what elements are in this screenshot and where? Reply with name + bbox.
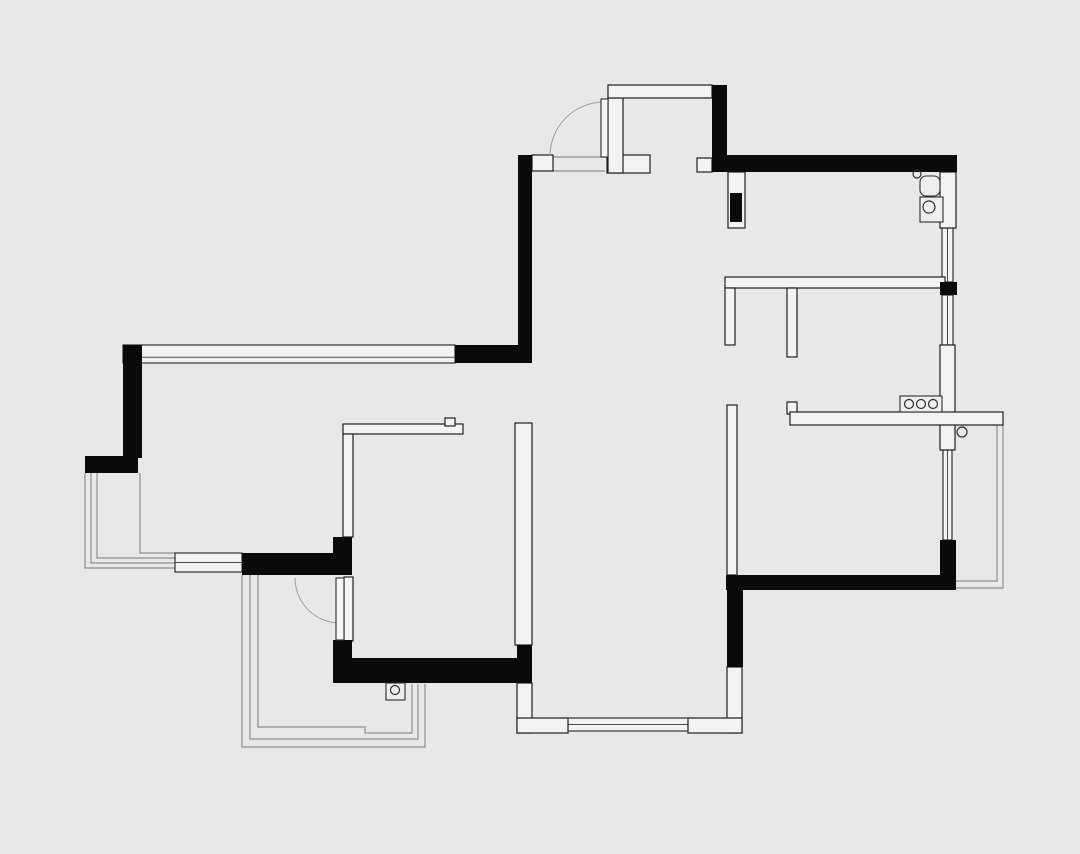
entry-niche-north-wall [608, 85, 712, 98]
bedroom2-balcony-door-leaf [336, 578, 344, 640]
north-exterior-wall [712, 155, 957, 172]
balcony-door-jamb [344, 577, 353, 641]
northwest-wall-corner [455, 345, 532, 363]
bedroom2-west-wall-upper [333, 537, 352, 575]
southeast-wall [726, 575, 955, 590]
bedroom2-west-wall-lower [333, 640, 352, 683]
entry-niche-west-wall [608, 98, 623, 173]
entry-east-stub [697, 158, 712, 172]
closet-wall-leg-a [725, 288, 735, 345]
hall-wall-vertical [727, 405, 737, 575]
east-balcony-rail-inner [955, 425, 997, 581]
entry-door-leaf [601, 99, 608, 157]
west-balcony-ledge [85, 456, 138, 473]
bedroom2-north-notch [445, 418, 455, 426]
east-balcony-rail-outer [955, 425, 1003, 588]
living-southwest-wall-h [517, 718, 568, 733]
north-long-window [123, 345, 455, 363]
floor-plan-canvas [0, 0, 1080, 854]
west-balcony-rail-mid [91, 473, 175, 563]
kitchen-wall-horizontal [790, 412, 1003, 425]
east-wall-block [940, 282, 957, 295]
entry-pier-fill [730, 193, 742, 222]
floor-plan [0, 0, 1080, 854]
bedroom2-balcony-door-swing-arc [295, 578, 340, 623]
entry-niche-east-wall [712, 85, 727, 155]
bedroom2-east-wall [515, 423, 532, 645]
south-step-block [517, 645, 532, 683]
west-exterior-wall [123, 345, 142, 458]
closet-wall-horizontal [725, 277, 945, 288]
west-balcony-rail-outer [85, 473, 175, 568]
bedroom2-west-partition [343, 434, 353, 537]
entry-door-left-jamb [532, 155, 553, 171]
west-balcony-rail-in [97, 473, 175, 558]
east-balcony-drain [957, 427, 967, 437]
closet-wall-leg-b [787, 288, 797, 357]
west-balcony-inner-edge [140, 473, 175, 553]
entry-west-wall [518, 155, 532, 363]
sink-unit-fixture [920, 176, 940, 196]
living-east-wall [727, 580, 743, 667]
south-wall-band [352, 658, 517, 683]
cooktop-fixture [900, 396, 942, 412]
living-southeast-wall-h [688, 718, 742, 733]
entry-door-swing-arc [550, 102, 604, 156]
